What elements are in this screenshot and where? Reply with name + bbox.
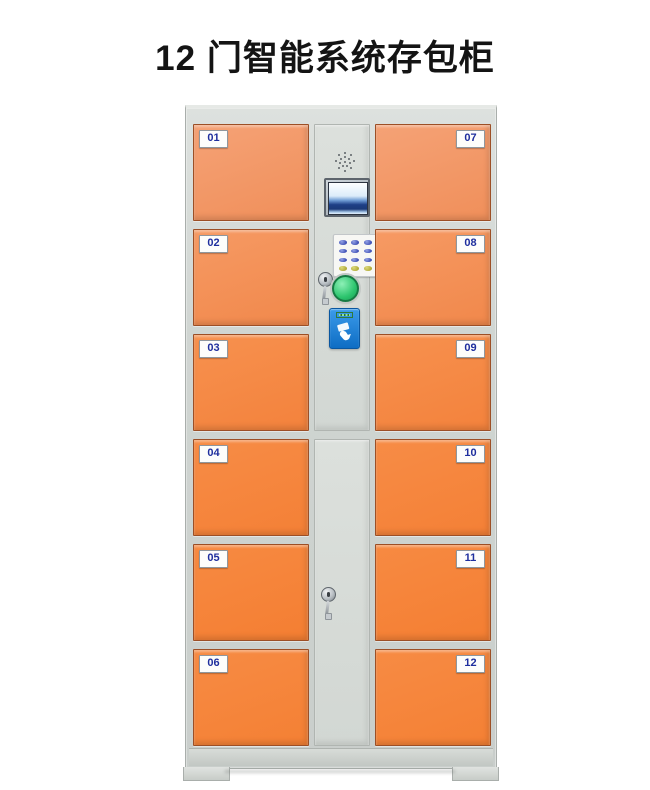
locker-door-04[interactable]: 04 (193, 439, 309, 536)
card-reader[interactable] (329, 308, 360, 349)
cabinet-foot-right (452, 767, 499, 781)
locker-door-10[interactable]: 10 (375, 439, 491, 536)
door-number-label: 06 (199, 655, 228, 673)
door-number-label: 03 (199, 340, 228, 358)
key-tag (322, 298, 329, 305)
service-door-lock[interactable] (321, 587, 336, 602)
ground-shadow (225, 770, 455, 773)
keypad-key[interactable] (364, 249, 372, 254)
locker-door-08[interactable]: 08 (375, 229, 491, 326)
door-number-label: 01 (199, 130, 228, 148)
door-grid: 01 02 03 04 05 06 (193, 124, 489, 746)
door-number-label: 07 (456, 130, 485, 148)
center-service-door[interactable] (314, 439, 370, 746)
keypad-key[interactable] (364, 258, 372, 263)
keypad-key[interactable] (339, 266, 347, 271)
confirm-button[interactable] (332, 275, 359, 302)
locker-door-02[interactable]: 02 (193, 229, 309, 326)
speaker-icon (333, 150, 357, 174)
keypad-key[interactable] (364, 266, 372, 271)
keypad-key[interactable] (351, 266, 359, 271)
keyhole-icon (327, 592, 330, 597)
lcd-display (324, 178, 370, 217)
keypad-key[interactable] (351, 240, 359, 245)
right-door-column: 07 08 09 10 11 12 (375, 124, 491, 746)
cabinet-foot-left (183, 767, 230, 781)
keypad-key[interactable] (351, 249, 359, 254)
keypad-key[interactable] (339, 258, 347, 263)
door-number-label: 02 (199, 235, 228, 253)
locker-door-09[interactable]: 09 (375, 334, 491, 431)
control-panel (314, 124, 370, 431)
locker-door-07[interactable]: 07 (375, 124, 491, 221)
door-number-label: 11 (456, 550, 485, 568)
locker-door-05[interactable]: 05 (193, 544, 309, 641)
keyhole-icon (324, 277, 327, 282)
swipe-card-icon (336, 322, 353, 344)
center-column (314, 124, 370, 746)
product-title: 12 门智能系统存包柜 (0, 30, 650, 81)
locker-cabinet: 01 02 03 04 05 06 (185, 105, 497, 769)
cabinet-base (189, 748, 493, 766)
door-number-label: 12 (456, 655, 485, 673)
lcd-screen (328, 182, 368, 215)
door-number-label: 04 (199, 445, 228, 463)
keypad-key[interactable] (339, 249, 347, 254)
keypad-key[interactable] (339, 240, 347, 245)
key-tag (325, 613, 332, 620)
left-door-column: 01 02 03 04 05 06 (193, 124, 309, 746)
keypad-key[interactable] (364, 240, 372, 245)
door-number-label: 08 (456, 235, 485, 253)
reader-display (336, 312, 353, 318)
locker-door-06[interactable]: 06 (193, 649, 309, 746)
locker-door-12[interactable]: 12 (375, 649, 491, 746)
locker-door-11[interactable]: 11 (375, 544, 491, 641)
locker-door-01[interactable]: 01 (193, 124, 309, 221)
numeric-keypad[interactable] (333, 234, 378, 277)
key-lock[interactable] (318, 272, 333, 287)
locker-door-03[interactable]: 03 (193, 334, 309, 431)
door-number-label: 10 (456, 445, 485, 463)
door-number-label: 09 (456, 340, 485, 358)
keypad-key[interactable] (351, 258, 359, 263)
door-number-label: 05 (199, 550, 228, 568)
